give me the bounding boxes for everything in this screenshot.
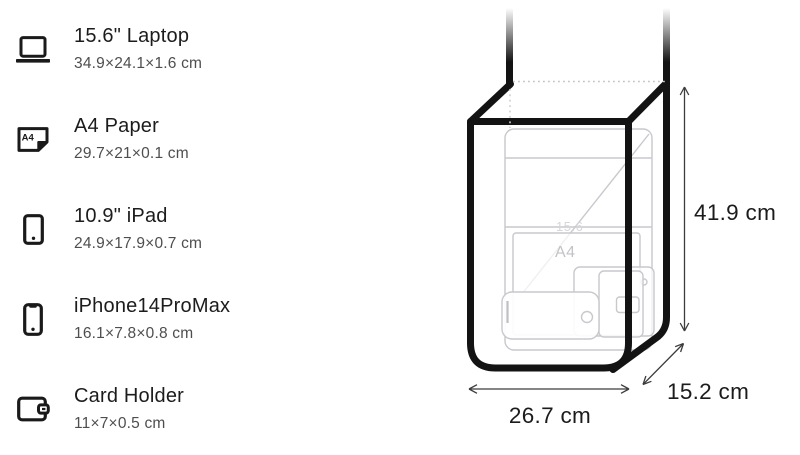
bag-top-right-edge [629, 84, 666, 122]
size-comparison-infographic: 15.6" Laptop 34.9×24.1×1.6 cm A4 A4 Pape… [0, 0, 800, 455]
width-arrow [469, 385, 629, 394]
ghost-card-holder [599, 271, 643, 337]
height-arrow [680, 87, 689, 331]
height-dimension-label: 41.9 cm [694, 200, 776, 226]
ghost-laptop-label: 15.6 [556, 219, 583, 234]
bag-dimension-diagram: 15.6 A4 [0, 0, 800, 455]
ghost-a4-label: A4 [555, 244, 576, 261]
bag-top-left-edge [471, 84, 511, 122]
width-dimension-label: 26.7 cm [489, 403, 611, 429]
depth-dimension-label: 15.2 cm [667, 379, 749, 405]
ghost-iphone [502, 292, 599, 339]
